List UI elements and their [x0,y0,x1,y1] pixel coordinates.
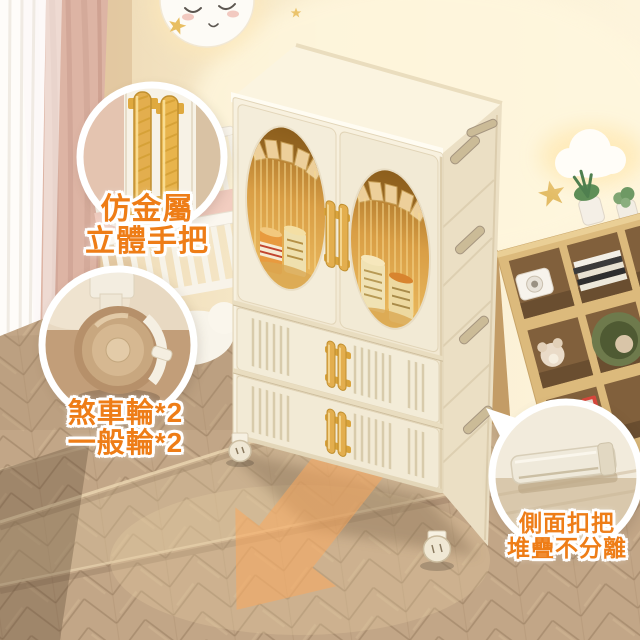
handle-label: 仿金屬 立體手把 [52,194,242,259]
cabinet-front-face [233,97,443,493]
handle-label-line2: 立體手把 [52,226,242,258]
wheel-label-line1: 煞車輪*2 [18,398,233,428]
handle-label-line1: 仿金屬 [52,194,242,226]
product-photo-scene: 仿金屬 立體手把 煞車輪*2 一般輪*2 側面扣把 堆疊不分離 [0,0,640,640]
buckle-label-line1: 側面扣把 [478,511,640,536]
buckle-label-line2: 堆疊不分離 [478,536,640,561]
buckle-label: 側面扣把 堆疊不分離 [478,511,640,561]
wheel-label-line2: 一般輪*2 [18,428,233,458]
wheel-label: 煞車輪*2 一般輪*2 [18,398,233,458]
